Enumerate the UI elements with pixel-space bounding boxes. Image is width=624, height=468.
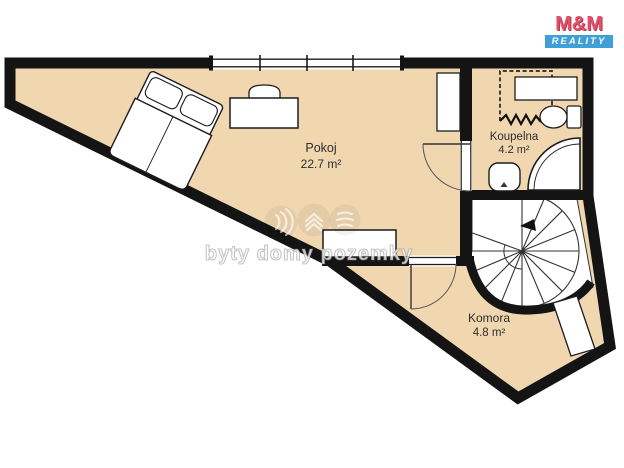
window-band bbox=[209, 55, 404, 71]
sink bbox=[489, 163, 520, 191]
toilet bbox=[540, 106, 581, 128]
floorplan-svg: Pokoj 22.7 m² Koupelna 4.2 m² Komora 4.8… bbox=[0, 0, 624, 468]
wall-koupelna-bottom bbox=[460, 190, 588, 200]
agency-logo-tagline: REALITY bbox=[552, 37, 607, 47]
watermark-text: byty domy pozemky bbox=[205, 243, 413, 265]
room-name: Komora bbox=[468, 311, 510, 325]
floorplan-canvas: Pokoj 22.7 m² Koupelna 4.2 m² Komora 4.8… bbox=[0, 0, 624, 468]
agency-logo: M&M REALITY bbox=[545, 12, 613, 48]
wall-pokoj-bottom-right bbox=[456, 256, 474, 266]
wardrobe bbox=[437, 73, 460, 131]
chair bbox=[249, 85, 280, 99]
agency-logo-bottom: REALITY bbox=[545, 35, 613, 48]
agency-logo-top: M&M bbox=[545, 12, 613, 35]
room-name: Pokoj bbox=[305, 141, 336, 155]
room-name: Koupelna bbox=[490, 131, 539, 143]
room-area: 22.7 m² bbox=[301, 157, 342, 171]
wall-pokoj-koupelna-lower bbox=[460, 191, 472, 266]
wall-pokoj-koupelna-upper bbox=[460, 58, 472, 141]
room-area: 4.8 m² bbox=[473, 327, 506, 339]
bathroom-cabinet bbox=[515, 77, 577, 100]
agency-logo-name: M&M bbox=[555, 14, 603, 34]
room-area: 4.2 m² bbox=[498, 144, 530, 156]
